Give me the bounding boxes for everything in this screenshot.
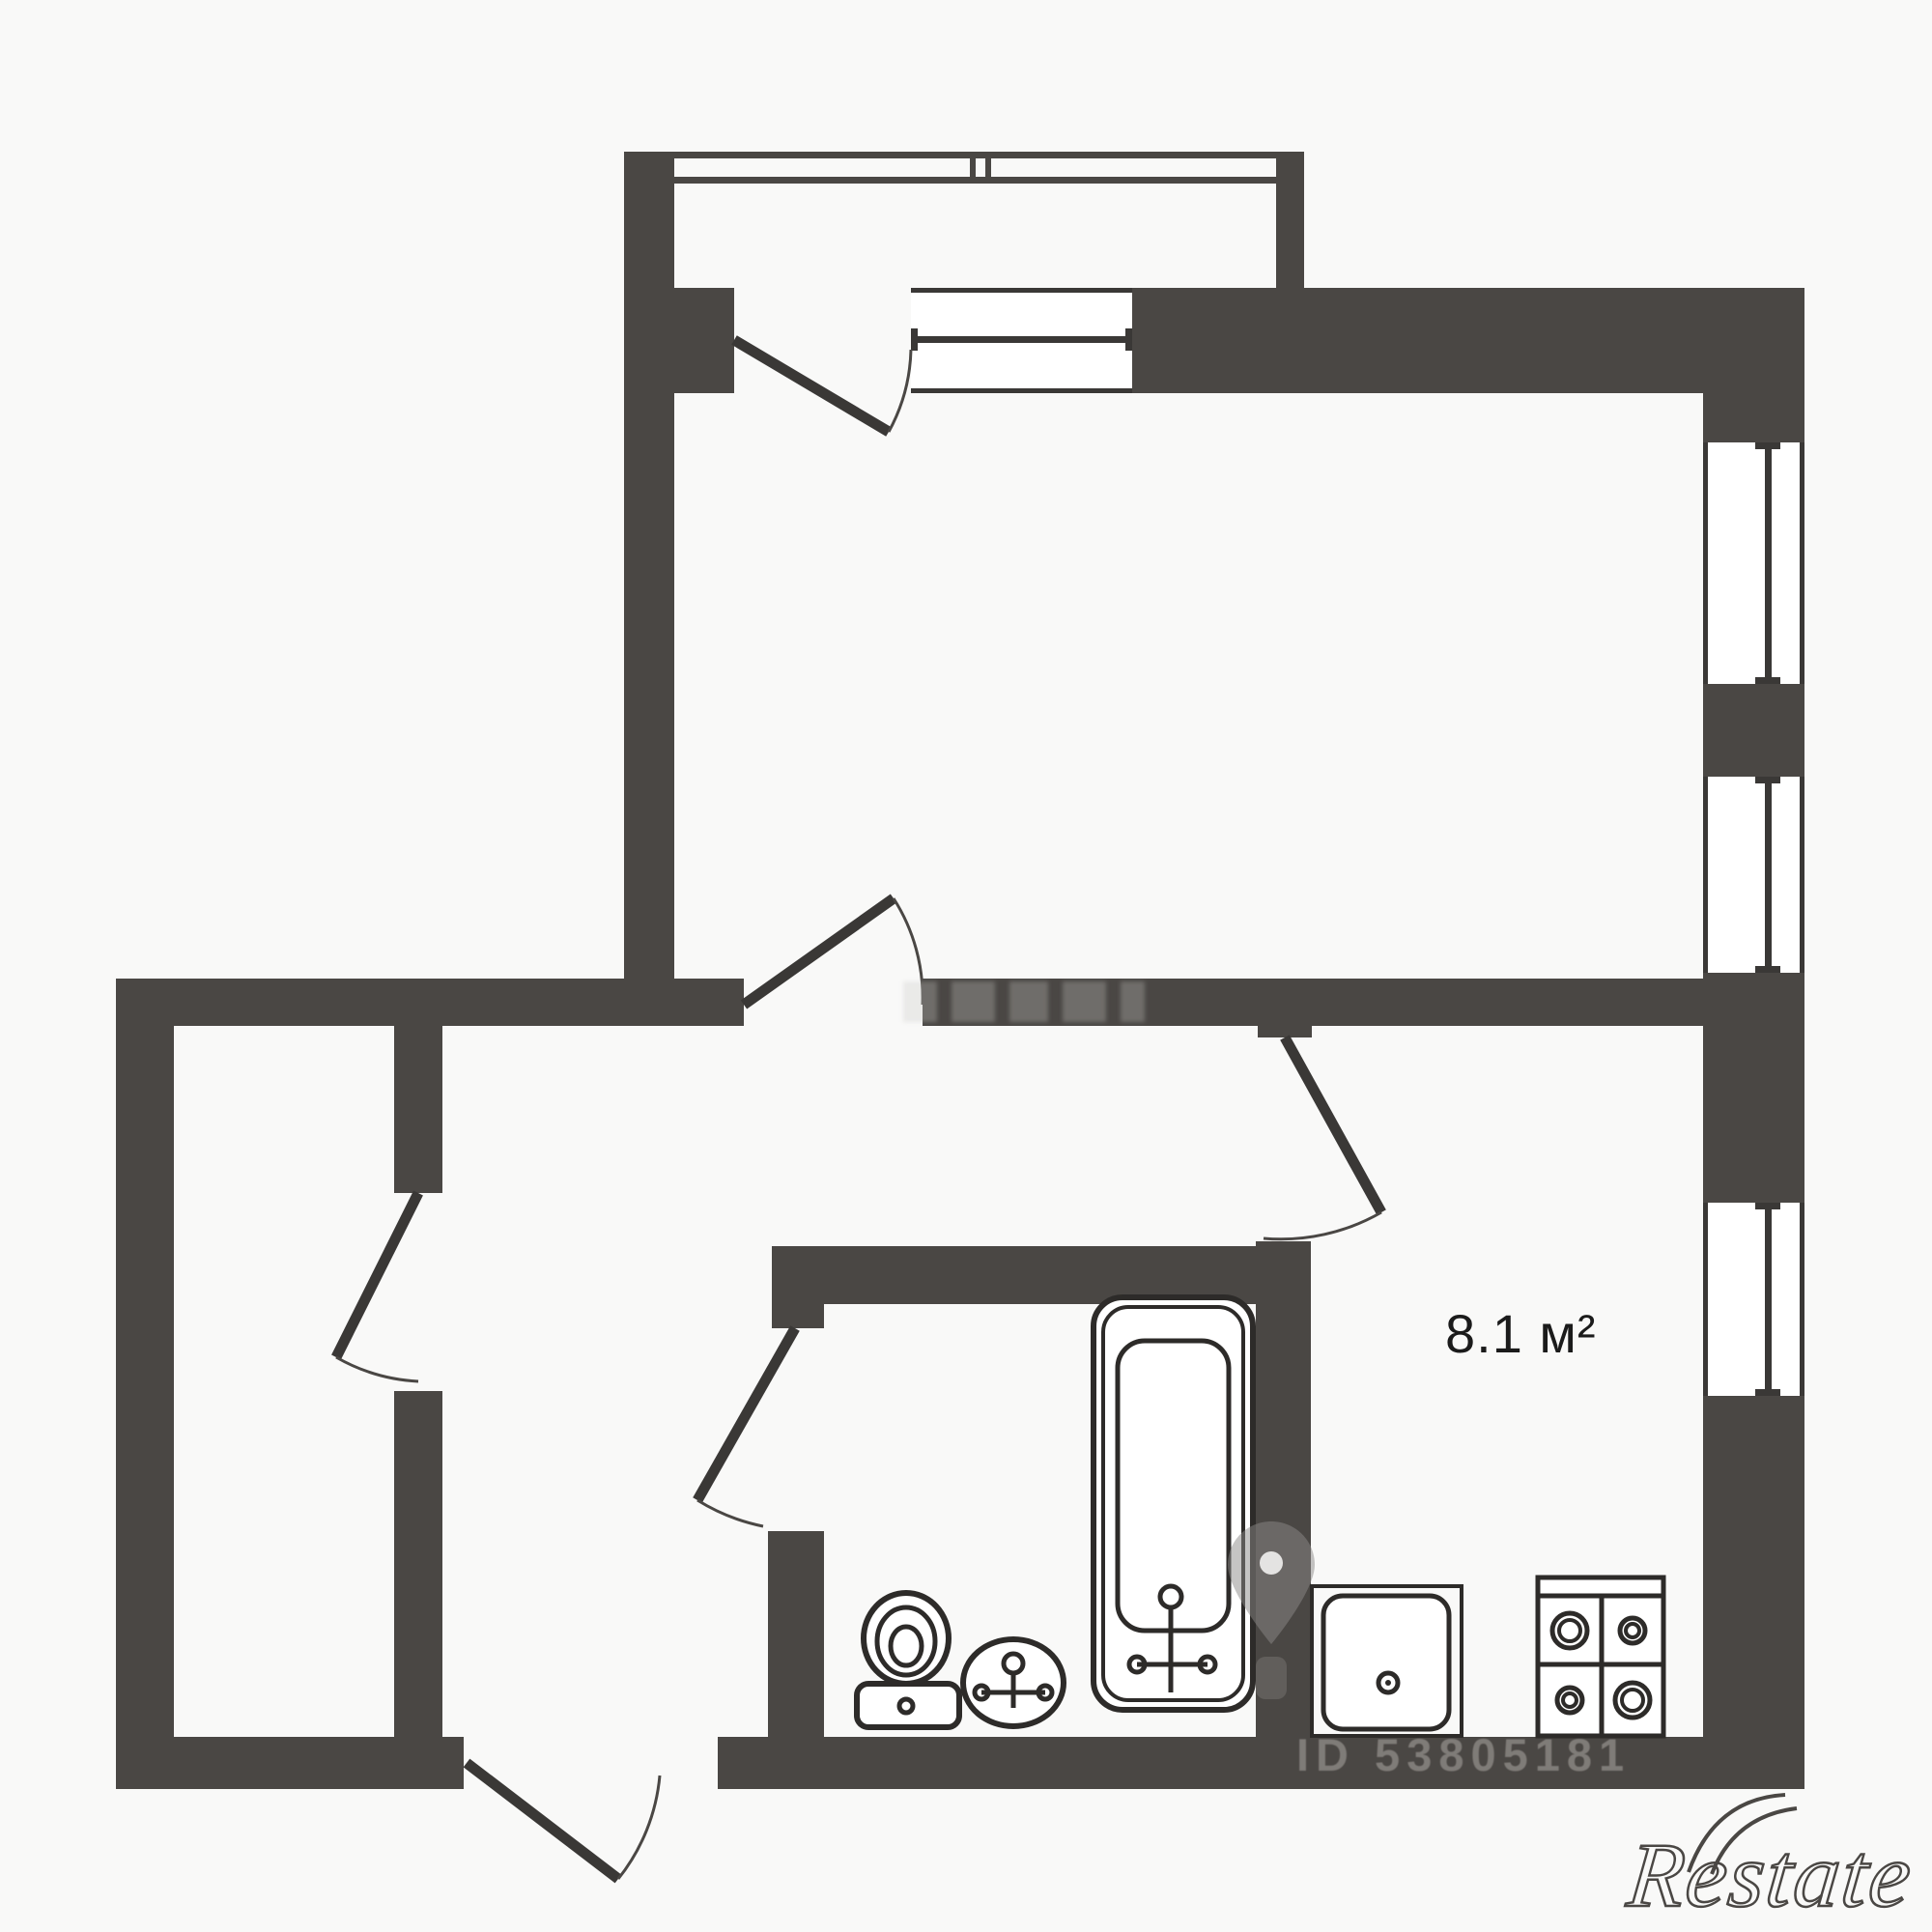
kitchen-sink (1323, 1596, 1449, 1729)
room-window1-tick-top (1755, 442, 1780, 449)
room-window2-glass (1765, 779, 1772, 971)
wall-mid-band-left (116, 979, 744, 1026)
bathroom-door-leaf (697, 1328, 795, 1500)
entrance-door-leaf (467, 1763, 618, 1879)
kitchen-window-glass (1765, 1205, 1772, 1394)
balcony-door-arc (889, 350, 911, 432)
room-window1 (1703, 442, 1804, 684)
room-window2-tick-bottom (1755, 966, 1780, 973)
balcony-door-leaf (734, 340, 889, 432)
balcony-window-tick-left (911, 328, 918, 351)
room-window2-edge-in (1703, 777, 1708, 973)
balcony-rail-tick1 (970, 152, 976, 184)
kitchen-window (1703, 1203, 1804, 1396)
wall-right-seg4 (1703, 1396, 1804, 1789)
floor-plan: 8.1 м² ID 53805181 Restate (0, 0, 1932, 1932)
wall-top-door-stub (674, 288, 734, 393)
balcony-window-tick-right (1125, 328, 1132, 351)
restate-logo-text: Restate (1623, 1822, 1918, 1928)
wall-closet-divider-top (394, 1026, 442, 1193)
kitchen-window-edge-out (1800, 1203, 1804, 1396)
wall-top-right (1132, 288, 1804, 393)
wall-left-lower (116, 979, 174, 1789)
kitchen-window-tick-top (1755, 1203, 1780, 1209)
watermark-pin-hole (1260, 1551, 1283, 1575)
room-window2-edge-out (1800, 777, 1804, 973)
watermark-midline-blur (903, 981, 1145, 1022)
wall-left-upper (624, 152, 674, 979)
room-window1-edge-out (1800, 442, 1804, 684)
room-window1-edge-in (1703, 442, 1708, 684)
kitchen-window-edge-in (1703, 1203, 1708, 1396)
bathroom-door-arc (697, 1500, 763, 1526)
balcony-window-edge-bottom (911, 388, 1132, 393)
balcony-rail-tick2 (985, 152, 991, 184)
toilet-tank (857, 1684, 959, 1727)
room-door-leaf (744, 898, 894, 1005)
room-window1-glass (1765, 444, 1772, 682)
kitchen-door-arc (1264, 1212, 1381, 1239)
balcony-window-glass (913, 336, 1130, 343)
entrance-door-arc (618, 1776, 660, 1879)
balcony-rail-line-bottom (624, 177, 1304, 184)
balcony-window-edge-top (911, 288, 1132, 293)
wall-right-seg2 (1703, 684, 1804, 777)
wall-bottom-left (116, 1737, 464, 1789)
watermark-id-text: ID 53805181 (1296, 1728, 1631, 1781)
kitchen-window-tick-bottom (1755, 1389, 1780, 1396)
kitchen-sink-drain-dot (1385, 1680, 1391, 1686)
room-window2-tick-top (1755, 777, 1780, 783)
wall-balcony-right (1276, 152, 1304, 297)
wall-bathroom-left-jamb (772, 1304, 824, 1328)
room-window1-tick-bottom (1755, 677, 1780, 684)
wall-kitchen-door-jamb (1258, 1026, 1312, 1037)
kitchen-area-label: 8.1 м² (1445, 1302, 1597, 1365)
wall-right-seg3 (1703, 973, 1804, 1203)
watermark-pin-tail (1256, 1657, 1287, 1699)
balcony-rail-line-top (624, 152, 1304, 158)
wall-bathroom-left-lower (768, 1531, 824, 1737)
floor-plan-svg (0, 0, 1932, 1932)
wall-bottom-right (718, 1737, 1804, 1789)
wall-right-seg1 (1703, 393, 1804, 442)
room-window2 (1703, 777, 1804, 973)
kitchen-door-leaf (1285, 1037, 1381, 1212)
closet-door-arc (336, 1357, 418, 1381)
wall-closet-divider-bottom (394, 1391, 442, 1789)
closet-door-leaf (336, 1193, 418, 1357)
